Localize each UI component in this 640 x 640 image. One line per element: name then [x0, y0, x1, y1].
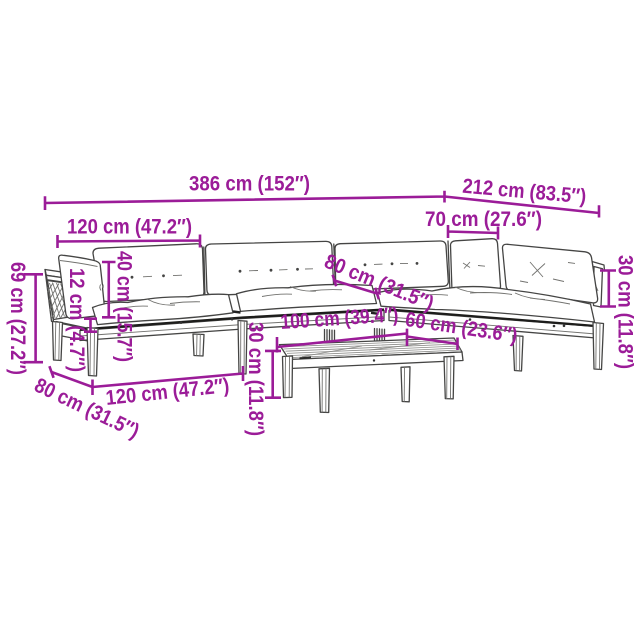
svg-text:12 cm (4.7″): 12 cm (4.7″)	[65, 268, 88, 372]
svg-text:386 cm (152″): 386 cm (152″)	[189, 172, 310, 195]
svg-text:120 cm (47.2″): 120 cm (47.2″)	[67, 216, 192, 239]
svg-text:30 cm (11.8″): 30 cm (11.8″)	[614, 255, 637, 369]
svg-text:69 cm (27.2″): 69 cm (27.2″)	[6, 262, 29, 375]
svg-text:30 cm (11.8″): 30 cm (11.8″)	[244, 322, 267, 436]
svg-text:40 cm (15.7″): 40 cm (15.7″)	[113, 251, 136, 362]
svg-text:70 cm (27.6″): 70 cm (27.6″)	[425, 208, 542, 231]
